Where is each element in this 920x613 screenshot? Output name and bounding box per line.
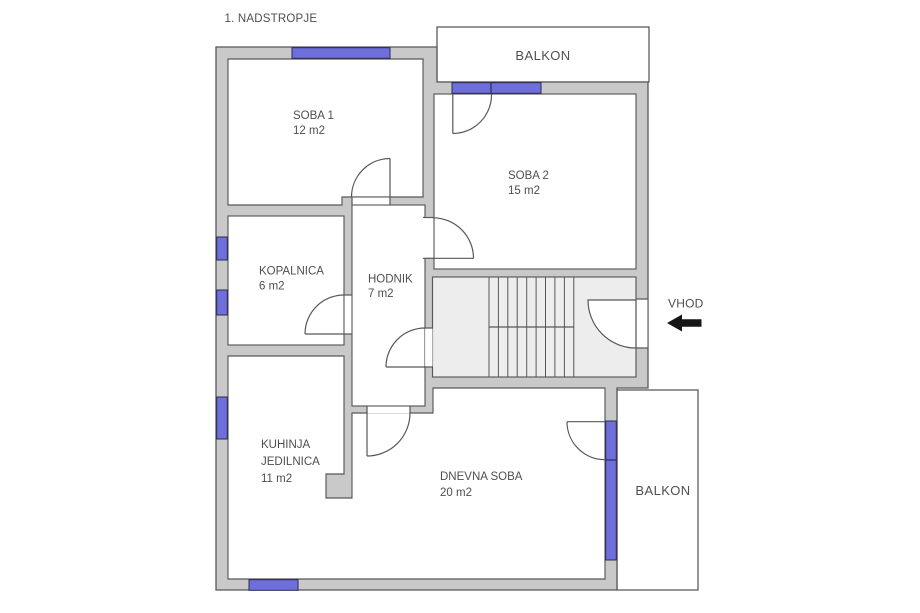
svg-text:SOBA 2: SOBA 2 [508, 170, 549, 182]
svg-text:12 m2: 12 m2 [293, 125, 325, 137]
svg-text:20 m2: 20 m2 [440, 487, 472, 499]
svg-text:1. NADSTROPJE: 1. NADSTROPJE [225, 13, 318, 25]
svg-text:SOBA 1: SOBA 1 [293, 110, 334, 122]
svg-text:JEDILNICA: JEDILNICA [261, 456, 320, 468]
svg-text:15 m2: 15 m2 [508, 185, 540, 197]
svg-text:DNEVNA SOBA: DNEVNA SOBA [440, 471, 523, 483]
svg-text:VHOD: VHOD [668, 297, 704, 311]
svg-text:11 m2: 11 m2 [261, 473, 292, 485]
svg-text:7 m2: 7 m2 [368, 288, 394, 300]
svg-text:HODNIK: HODNIK [368, 274, 413, 286]
svg-text:KUHINJA: KUHINJA [261, 439, 311, 451]
svg-text:6 m2: 6 m2 [259, 281, 285, 293]
svg-text:BALKON: BALKON [635, 483, 690, 498]
svg-text:BALKON: BALKON [515, 48, 570, 63]
svg-text:KOPALNICA: KOPALNICA [259, 266, 324, 278]
